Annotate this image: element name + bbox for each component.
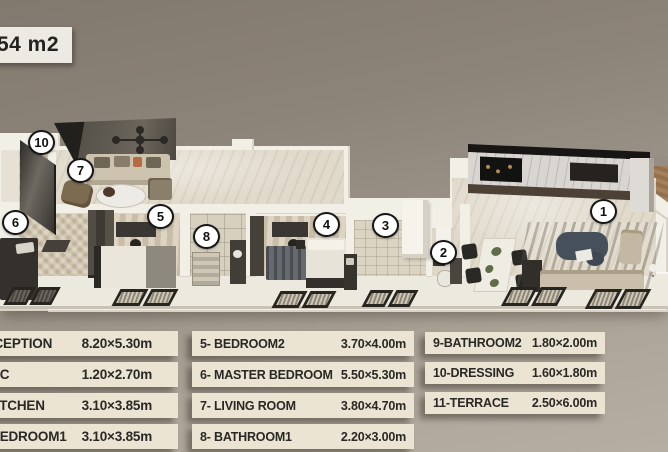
window-reception-2	[585, 289, 652, 309]
wall-bedroom2-bathroom1	[180, 210, 190, 276]
legend-label: 11-TERRACE	[433, 396, 509, 410]
bathroom1-vanity	[230, 240, 246, 284]
table-plant	[489, 279, 499, 287]
window-kitchen	[361, 290, 418, 307]
bottle	[496, 169, 500, 173]
legend-dims: 5.50×5.30m	[341, 368, 406, 382]
bedroom1-nightstand	[296, 240, 305, 249]
bed-blanket	[146, 246, 176, 288]
reception-floor-lamp	[649, 264, 657, 272]
legend-label: 10-DRESSING	[433, 366, 514, 380]
legend-item-bedroom2: 5- BEDROOM2 3.70×4.00m	[192, 331, 414, 356]
reception-armchair	[619, 229, 643, 264]
bedroom2-bed	[94, 246, 176, 288]
legend-dims: 1.80×2.00m	[532, 336, 597, 350]
bottle	[486, 165, 490, 169]
legend-dims: 3.70×4.00m	[341, 337, 406, 351]
legend-dims: 1.20×2.70m	[82, 367, 168, 382]
legend-item-wc: 2- WC 1.20×2.70m	[0, 362, 178, 387]
bed-footboard	[306, 278, 346, 288]
legend-label: 1- RECEPTION	[0, 336, 52, 351]
window-reception-1	[501, 287, 567, 306]
bedroom1-wardrobe	[250, 216, 264, 276]
ceiling-light-icon	[110, 126, 170, 154]
legend-item-reception: 1- RECEPTION 8.20×5.30m	[0, 331, 178, 356]
room-marker-6: 6	[2, 210, 29, 235]
wall-column	[402, 200, 428, 258]
legend-item-bathroom2: 9-BATHROOM2 1.80×2.00m	[425, 332, 605, 354]
legend-item-kitchen: 3- KITCHEN 3.10×3.85m	[0, 393, 178, 418]
bathroom1-mat	[192, 252, 220, 286]
legend-item-bathroom1: 8- BATHROOM1 2.20×3.00m	[192, 424, 414, 449]
dining-chair	[465, 267, 482, 284]
area-badge-text: 54 m2	[0, 33, 59, 57]
floor-plan-render: 54 m2	[0, 0, 668, 452]
legend-label: 3- KITCHEN	[0, 398, 45, 413]
bed-headboard	[94, 246, 101, 288]
legend-label: 6- MASTER BEDROOM	[200, 368, 333, 382]
legend-label: 4- BEDROOM1	[0, 429, 67, 444]
legend-dims: 3.10×3.85m	[82, 398, 168, 413]
bed-pillow	[308, 240, 344, 250]
room-marker-2: 2	[430, 240, 457, 265]
area-badge: 54 m2	[0, 27, 72, 63]
kitchen-appliance	[346, 258, 354, 265]
sofa-cushion-accent	[133, 157, 142, 167]
room-marker-7: 7	[67, 158, 94, 183]
window-bedroom2	[111, 289, 178, 306]
island-end-panel	[630, 158, 654, 212]
island-shelf	[480, 157, 522, 183]
legend-dims: 2.50×6.00m	[532, 396, 597, 410]
room-marker-3: 3	[372, 213, 399, 238]
room-marker-4: 4	[313, 212, 340, 237]
legend-label: 7- LIVING ROOM	[200, 399, 296, 413]
room-marker-10: 10	[28, 130, 55, 155]
bedroom1-bed	[306, 238, 346, 288]
coffee-table-tray	[103, 187, 115, 197]
bathroom1-sink	[233, 250, 242, 258]
legend-dims: 3.10×3.85m	[82, 429, 168, 444]
legend-column-left: 1- RECEPTION 8.20×5.30m 2- WC 1.20×2.70m…	[0, 331, 178, 449]
legend-label: 2- WC	[0, 367, 9, 382]
legend-dims: 1.60×1.80m	[532, 366, 597, 380]
legend-item-terrace: 11-TERRACE 2.50×6.00m	[425, 392, 605, 414]
legend-item-dressing: 10-DRESSING 1.60×1.80m	[425, 362, 605, 384]
legend-dims: 8.20×5.30m	[82, 336, 168, 351]
bottle	[508, 165, 512, 169]
legend-dims: 3.80×4.70m	[341, 399, 406, 413]
legend-item-bedroom1: 4- BEDROOM1 3.10×3.85m	[0, 424, 178, 449]
island-shelf	[570, 162, 618, 182]
legend-label: 5- BEDROOM2	[200, 337, 285, 351]
legend-item-master-bedroom: 6- MASTER BEDROOM 5.50×5.30m	[192, 362, 414, 387]
room-bathroom2-floor	[1, 150, 19, 202]
bed-mattress	[101, 246, 146, 288]
dining-chair	[461, 243, 478, 260]
sofa-cushion	[94, 157, 110, 168]
sofa-cushion	[146, 157, 161, 168]
legend-label: 8- BATHROOM1	[200, 430, 292, 444]
room-marker-1: 1	[590, 199, 617, 224]
window-bedroom1	[271, 291, 336, 308]
bedroom1-desk	[272, 222, 308, 237]
table-plant	[485, 265, 494, 273]
room-marker-8: 8	[193, 224, 220, 249]
legend-column-middle: 5- BEDROOM2 3.70×4.00m 6- MASTER BEDROOM…	[192, 331, 414, 449]
legend-label: 9-BATHROOM2	[433, 336, 522, 350]
living-coffee-table	[96, 184, 146, 208]
legend-column-right: 9-BATHROOM2 1.80×2.00m 10-DRESSING 1.60×…	[425, 332, 605, 414]
window-master	[3, 287, 61, 305]
room-marker-5: 5	[147, 204, 174, 229]
living-armchair	[148, 178, 172, 200]
sofa-cushion	[114, 156, 130, 167]
reception-kitchen-island	[468, 144, 650, 202]
legend-dims: 2.20×3.00m	[341, 430, 406, 444]
legend-item-living-room: 7- LIVING ROOM 3.80×4.70m	[192, 393, 414, 418]
table-plant	[491, 247, 503, 256]
